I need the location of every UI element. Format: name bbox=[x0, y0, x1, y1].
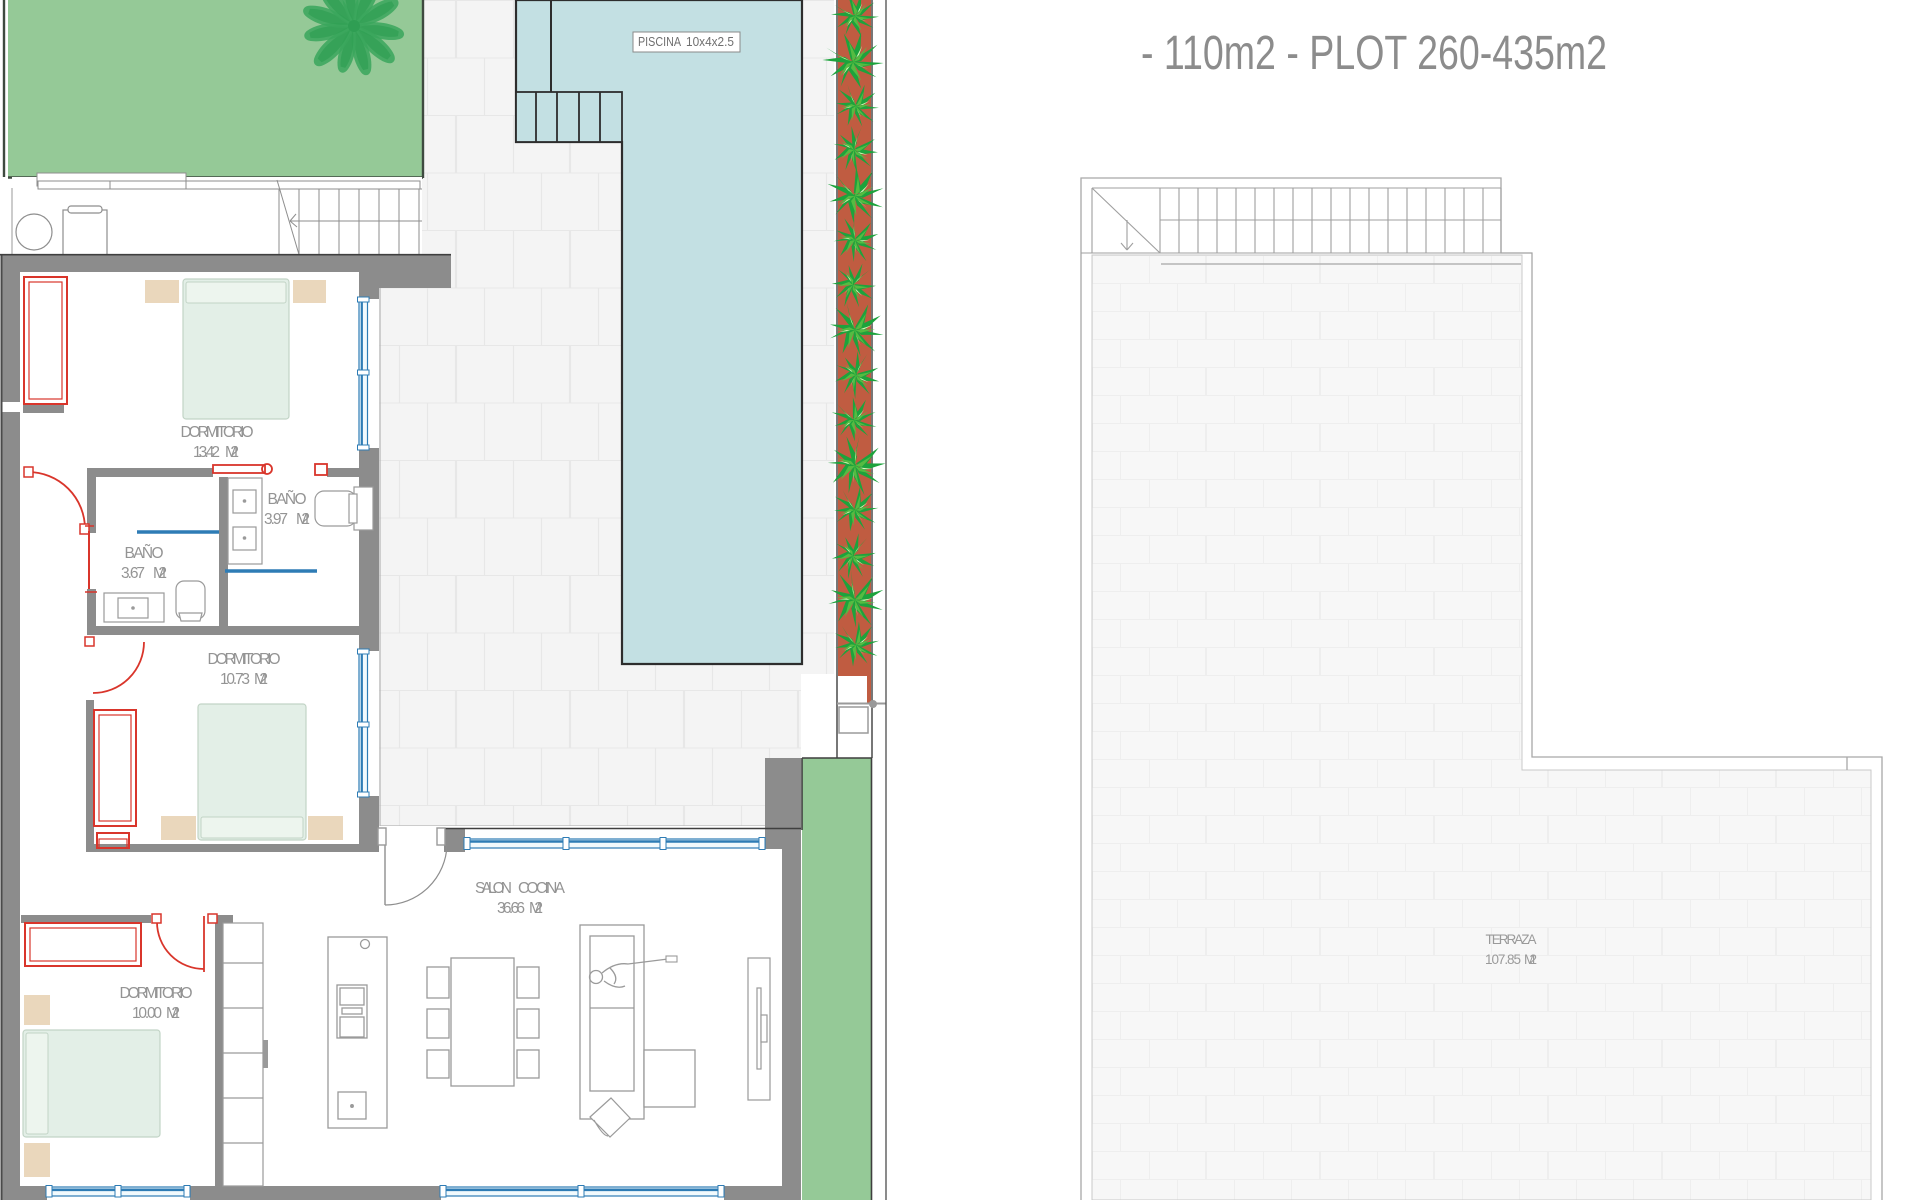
svg-text:BAÑO: BAÑO bbox=[268, 491, 307, 508]
svg-text:3.97: 3.97 bbox=[264, 511, 288, 528]
svg-text:M2: M2 bbox=[254, 671, 268, 688]
svg-text:M2: M2 bbox=[166, 1005, 180, 1022]
svg-text:M2: M2 bbox=[1524, 952, 1537, 967]
svg-text:M2: M2 bbox=[296, 511, 310, 528]
svg-text:13.42: 13.42 bbox=[193, 444, 220, 461]
svg-text:10.00: 10.00 bbox=[132, 1005, 162, 1022]
svg-text:DORMITORIO: DORMITORIO bbox=[208, 651, 281, 668]
svg-text:3.67: 3.67 bbox=[121, 565, 145, 582]
svg-text:SALON: SALON bbox=[475, 880, 512, 897]
svg-text:DORMITORIO: DORMITORIO bbox=[181, 424, 254, 441]
svg-text:36.66: 36.66 bbox=[497, 900, 525, 917]
svg-text:PISCINA: PISCINA bbox=[638, 35, 682, 49]
svg-text:M2: M2 bbox=[225, 444, 239, 461]
svg-text:- 110m2 - PLOT 260-435m2: - 110m2 - PLOT 260-435m2 bbox=[1141, 27, 1607, 80]
svg-text:COCINA: COCINA bbox=[518, 880, 566, 897]
svg-text:M2: M2 bbox=[529, 900, 543, 917]
svg-text:M2: M2 bbox=[153, 565, 167, 582]
svg-text:10x4x2.5: 10x4x2.5 bbox=[686, 35, 734, 49]
svg-text:DORMITORIO: DORMITORIO bbox=[120, 985, 193, 1002]
svg-text:TERRAZA: TERRAZA bbox=[1486, 932, 1537, 947]
svg-text:10.73: 10.73 bbox=[220, 671, 250, 688]
svg-text:107.85: 107.85 bbox=[1485, 952, 1521, 967]
svg-text:BAÑO: BAÑO bbox=[125, 545, 164, 562]
